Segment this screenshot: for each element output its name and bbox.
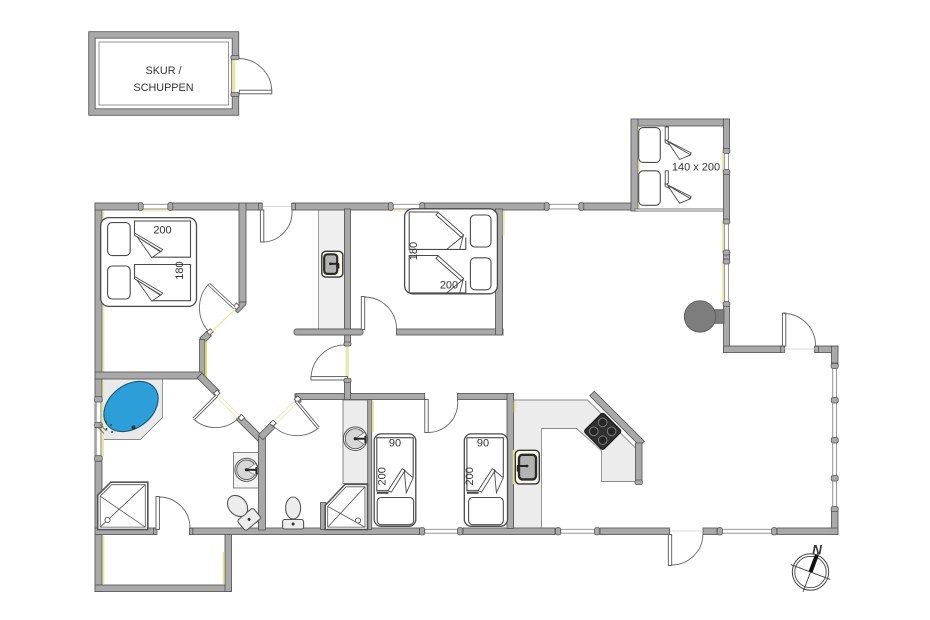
svg-text:SKUR /: SKUR / — [146, 65, 182, 77]
svg-text:200: 200 — [153, 225, 171, 237]
svg-text:200: 200 — [464, 467, 476, 485]
svg-text:140 x 200: 140 x 200 — [672, 161, 720, 173]
svg-text:N: N — [812, 543, 822, 558]
svg-text:SCHUPPEN: SCHUPPEN — [134, 82, 194, 94]
svg-text:200: 200 — [377, 467, 389, 485]
svg-text:180: 180 — [174, 261, 186, 279]
svg-text:180: 180 — [408, 242, 420, 260]
svg-text:90: 90 — [389, 438, 401, 450]
svg-text:90: 90 — [477, 438, 489, 450]
svg-text:200: 200 — [440, 280, 458, 292]
